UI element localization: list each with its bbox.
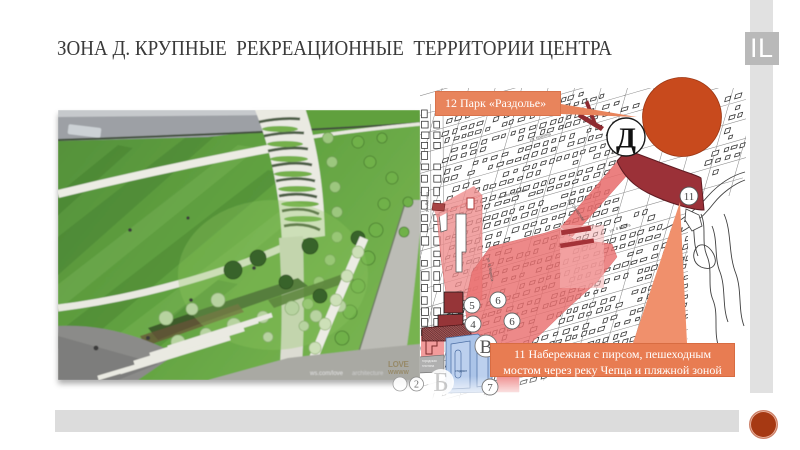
svg-text:WWWW: WWWW	[388, 370, 410, 376]
svg-text:Б: Б	[433, 367, 449, 397]
svg-text:стадион: стадион	[455, 369, 467, 373]
svg-text:ws.com/love: ws.com/love	[309, 371, 344, 377]
svg-text:architecture: architecture	[352, 371, 384, 377]
svg-text:6: 6	[495, 295, 501, 307]
svg-text:LOVE: LOVE	[388, 360, 410, 369]
svg-text:2: 2	[414, 380, 419, 391]
svg-text:Д: Д	[616, 123, 636, 155]
svg-text:7: 7	[487, 382, 493, 394]
svg-text:11: 11	[684, 191, 695, 203]
svg-text:4: 4	[470, 319, 476, 331]
svg-text:городская: городская	[422, 359, 437, 363]
svg-text:5: 5	[469, 300, 475, 312]
svg-text:6: 6	[509, 316, 515, 328]
svg-text:ул. Ленина: ул. Ленина	[424, 191, 430, 212]
